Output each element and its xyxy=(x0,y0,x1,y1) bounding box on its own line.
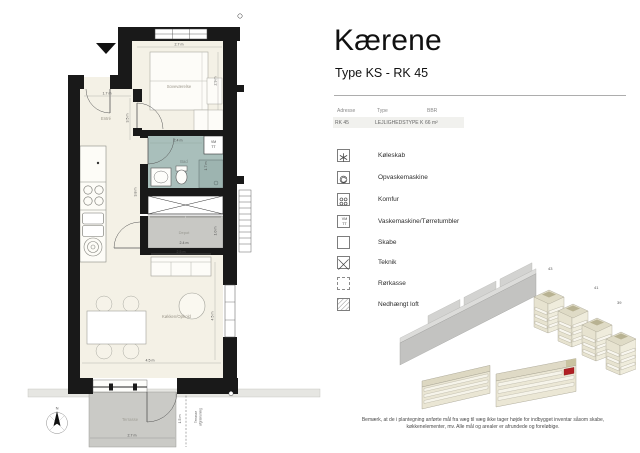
bathroom: VM TT Bad xyxy=(148,136,223,188)
tt-text: TT xyxy=(342,222,346,226)
terrace-label: Terrasse xyxy=(122,417,139,422)
terrace-boundary-label-2: afgrænsning xyxy=(199,408,203,426)
info-header-bbr: BBR xyxy=(427,108,437,114)
washer-tt-label: TT xyxy=(211,145,215,149)
floor-plan-svg: Terrasse Terrasse afgrænsning VM TT xyxy=(0,0,325,453)
page-title: Kærene xyxy=(334,24,442,58)
dashed-box-icon xyxy=(337,277,350,290)
dim-bedroom-depth: 2.9 m xyxy=(214,77,218,86)
fridge-snowflake-icon xyxy=(337,149,350,162)
dim-bathroom-depth: 1.7 m xyxy=(204,162,208,171)
legend-label: Vaskemaskine/Tørretumbler xyxy=(378,218,459,225)
legend-label: Teknik xyxy=(378,259,396,266)
building-label: 41 xyxy=(594,285,599,290)
dim-living-depth: 4.5 m xyxy=(210,312,214,321)
gabled-building xyxy=(422,365,490,409)
floor-plan-drawing: Terrasse Terrasse afgrænsning VM TT xyxy=(0,0,325,453)
compass-north-label: N xyxy=(56,406,59,411)
compass-icon: N xyxy=(47,406,68,434)
disclaimer-line-1: Bemærk, at de i plantegning anførte mål … xyxy=(328,417,638,424)
storage-label: Depot xyxy=(179,230,191,235)
exterior-stair xyxy=(239,190,251,252)
washer-vm-label: VM xyxy=(211,140,216,144)
info-header-type: Type xyxy=(377,108,388,114)
living-window xyxy=(225,285,235,337)
entry-label: Entré xyxy=(101,116,112,121)
info-header-adresse: Adresse xyxy=(337,108,355,114)
dim-bathroom-width: 2.4 m xyxy=(174,139,183,143)
chair-icon xyxy=(123,343,139,359)
building-label: 39 xyxy=(617,300,622,305)
legend-label: Skabe xyxy=(378,239,396,246)
door-stop-icon xyxy=(238,14,242,18)
dim-sofa-width: 2.5 m xyxy=(177,250,186,254)
tower-building xyxy=(606,332,636,375)
dim-storage-width: 2.4 m xyxy=(180,241,189,245)
site-plan-svg: 43 41 39 xyxy=(398,247,636,415)
info-type-value: LEJLIGHEDSTYPE K xyxy=(375,120,423,126)
dim-terrace-depth: 1.5 m xyxy=(178,415,182,424)
teknik-box xyxy=(148,196,223,214)
entrance-arrow-icon xyxy=(96,43,116,54)
counter-dot xyxy=(97,162,99,164)
terrace-boundary-label-1: Terrasse xyxy=(194,411,198,423)
building-label: 43 xyxy=(548,266,553,271)
hatched-box-icon xyxy=(337,298,350,311)
chair-icon xyxy=(96,343,112,359)
dishwasher-icon xyxy=(337,171,350,184)
disclaimer-line-2: køkkenelementer, mv. Alle mål og arealer… xyxy=(328,424,638,431)
dim-storage-depth: 1.0 m xyxy=(214,227,218,236)
page-subtitle: Type KS - RK 45 xyxy=(335,66,428,80)
dim-entry-depth: 3.5 m xyxy=(126,114,130,123)
dim-terrace-width: 2.7 m xyxy=(128,434,137,438)
bathroom-label: Bad xyxy=(180,159,188,164)
dim-living-width: 4.5 m xyxy=(146,359,155,363)
bedroom-label: Soveværelse xyxy=(167,84,192,89)
info-adresse-value: RK 45 xyxy=(335,120,349,126)
info-bbr-value: 66 m² xyxy=(425,120,438,126)
site-plan-illustration: 43 41 39 xyxy=(398,247,636,420)
disclaimer-note: Bemærk, at de i plantegning anførte mål … xyxy=(328,417,638,431)
dim-corridor-length: 3.8 m xyxy=(134,188,138,197)
dim-entry-width: 1.7 m xyxy=(103,92,112,96)
info-row: RK 45 LEJLIGHEDSTYPE K 66 m² xyxy=(333,117,464,128)
shower xyxy=(199,160,223,188)
vm-text: VM xyxy=(342,217,347,221)
stove-burners-icon xyxy=(337,193,350,206)
chair-icon xyxy=(123,296,139,312)
kitchen xyxy=(80,146,106,262)
divider-line xyxy=(334,95,626,96)
door-stop-icon xyxy=(229,391,233,395)
sofa-icon xyxy=(151,257,211,276)
washer-dryer-icon: VMTT xyxy=(337,215,350,228)
cabinet-box-icon xyxy=(337,236,350,249)
dim-bedroom-width: 2.7 m xyxy=(175,43,184,47)
crossed-box-icon xyxy=(337,256,350,269)
legend-label: Køleskab xyxy=(378,152,405,159)
living-label: Køkken/Ophold xyxy=(162,314,192,319)
terrace: Terrasse Terrasse afgrænsning xyxy=(89,392,203,447)
plan-sheet: Terrasse Terrasse afgrænsning VM TT xyxy=(0,0,640,453)
chair-icon xyxy=(96,296,112,312)
dining-table-icon xyxy=(87,311,146,344)
highlighted-building xyxy=(496,358,576,407)
legend-label: Opvaskemaskine xyxy=(378,174,428,181)
wardrobe xyxy=(194,110,223,131)
terrace-glazing xyxy=(93,380,147,392)
toilet-icon xyxy=(176,170,187,184)
legend-label: Komfur xyxy=(378,196,399,203)
grey-building xyxy=(400,261,536,365)
